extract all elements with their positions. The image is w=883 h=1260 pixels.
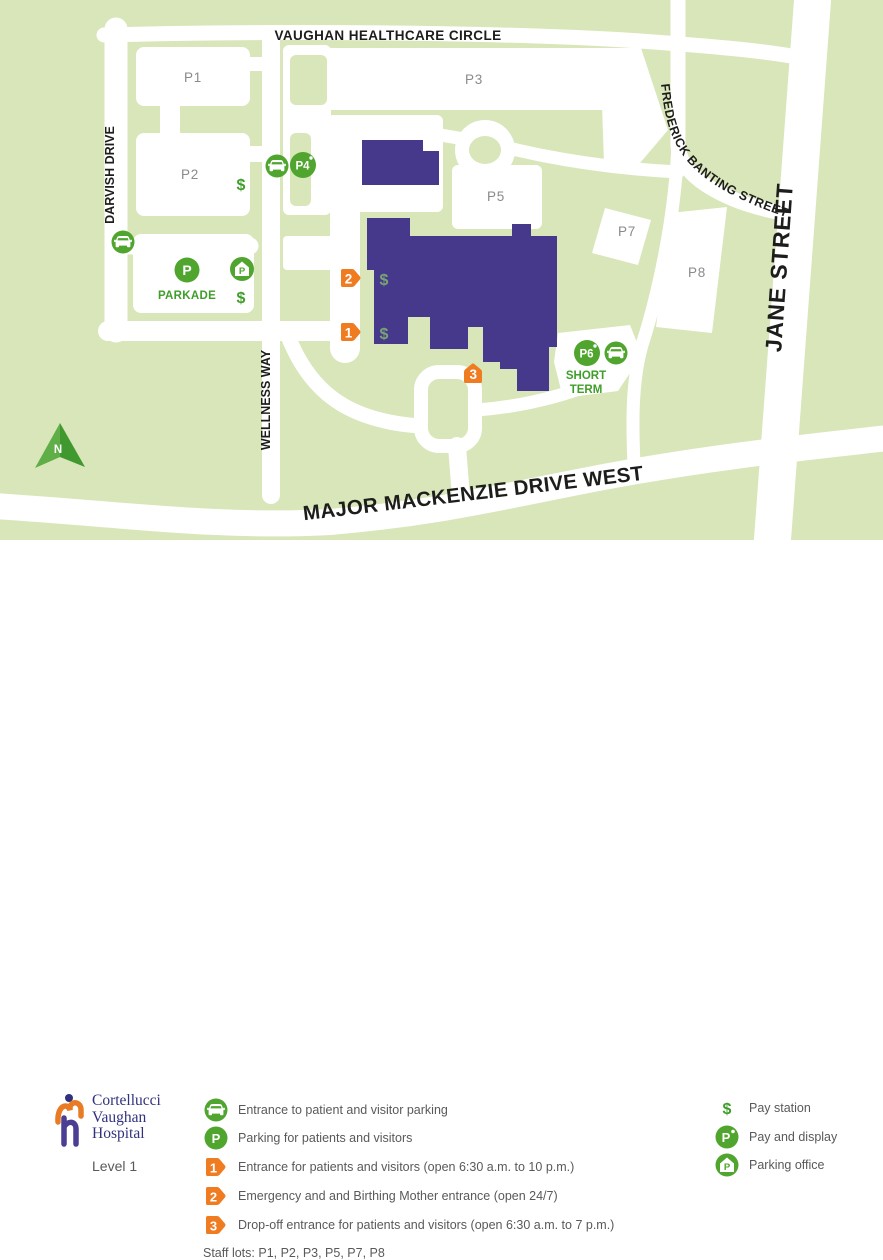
level-indicator: Level 1: [92, 1158, 137, 1174]
p4-badge-text: P4: [295, 161, 310, 173]
pay-station-icon: $: [237, 290, 246, 307]
pay-station-icon: $: [380, 326, 389, 343]
island: [290, 55, 327, 105]
entrance-1-number: 1: [345, 326, 353, 341]
legend-row-pay-station: $ Pay station: [714, 1095, 811, 1121]
hospital-name-line3: Hospital: [92, 1126, 161, 1143]
entrance-3-number: 3: [210, 1219, 217, 1234]
staff-lots-note: Staff lots: P1, P2, P3, P5, P7, P8: [203, 1246, 385, 1260]
p4-pay-display-badge: P4: [290, 152, 316, 178]
label-p7: P7: [618, 224, 636, 239]
office-icon-letter: P: [724, 1162, 731, 1173]
hospital-name-line2: Vaughan: [92, 1110, 161, 1127]
hospital-name: Cortellucci Vaughan Hospital: [92, 1093, 161, 1143]
label-p8: P8: [688, 265, 706, 280]
legend-label: Parking office: [749, 1158, 825, 1172]
north-letter: N: [54, 444, 62, 456]
car-entrance-icon: [203, 1097, 229, 1123]
entrance-2-badge: 2: [203, 1183, 229, 1209]
p6-badge-text: P6: [579, 349, 593, 361]
label-darvish-drive: DARVISH DRIVE: [103, 126, 117, 224]
label-short: SHORT: [566, 370, 606, 382]
parking-office-icon: P: [714, 1152, 740, 1178]
label-p5: P5: [487, 189, 505, 204]
legend-label: Drop-off entrance for patients and visit…: [238, 1218, 614, 1232]
lot-driveway: [245, 57, 267, 71]
legend-row-pay-display: P Pay and display: [714, 1124, 837, 1150]
pay-station-icon: $: [714, 1095, 740, 1121]
legend-label: Emergency and and Birthing Mother entran…: [238, 1189, 558, 1203]
entrance-2-number: 2: [210, 1190, 217, 1205]
parking-icon-letter: P: [212, 1131, 221, 1146]
legend-row-parking-office: P Parking office: [714, 1152, 825, 1178]
label-p1: P1: [184, 70, 202, 85]
lot-connector: [283, 236, 335, 270]
parking-icon: P: [175, 258, 200, 283]
label-term: TERM: [570, 384, 603, 396]
entrance-3-number: 3: [469, 367, 477, 382]
hospital-parking-map: VAUGHAN HEALTHCARE CIRCLE DARVISH DRIVE …: [0, 0, 883, 540]
pay-station-icon: $: [237, 177, 246, 194]
entrance-3-badge: 3: [203, 1212, 229, 1238]
car-entrance-icon: [112, 231, 135, 254]
label-parkade: PARKADE: [158, 290, 216, 302]
parking-icon-letter: P: [182, 262, 191, 278]
pay-station-icon: $: [380, 272, 389, 289]
legend-row-entrance-3: 3 Drop-off entrance for patients and vis…: [203, 1212, 614, 1238]
hospital-logo: [54, 1092, 92, 1152]
map-legend: Cortellucci Vaughan Hospital Level 1 Ent…: [0, 540, 883, 740]
legend-label: Pay and display: [749, 1130, 837, 1144]
p6-pay-display-badge: P6: [574, 340, 600, 366]
legend-label: Entrance for patients and visitors (open…: [238, 1160, 574, 1174]
car-entrance-icon: [266, 155, 289, 178]
label-p3: P3: [465, 72, 483, 87]
legend-label: Parking for patients and visitors: [238, 1131, 412, 1145]
legend-label: Entrance to patient and visitor parking: [238, 1103, 448, 1117]
car-entrance-icon: [605, 342, 628, 365]
island: [469, 136, 501, 164]
parking-office-icon: P: [230, 257, 254, 281]
legend-row-car-entrance: Entrance to patient and visitor parking: [203, 1097, 448, 1123]
map-canvas: VAUGHAN HEALTHCARE CIRCLE DARVISH DRIVE …: [0, 0, 883, 540]
entrance-1-badge: 1: [203, 1154, 229, 1180]
entrance-2-number: 2: [345, 272, 353, 287]
legend-row-parking: P Parking for patients and visitors: [203, 1125, 412, 1151]
legend-row-entrance-2: 2 Emergency and and Birthing Mother entr…: [203, 1183, 558, 1209]
pay-display-icon: P: [714, 1124, 740, 1150]
label-vaughan-healthcare-circle: VAUGHAN HEALTHCARE CIRCLE: [275, 28, 502, 43]
legend-row-entrance-1: 1 Entrance for patients and visitors (op…: [203, 1154, 574, 1180]
hospital-name-line1: Cortellucci: [92, 1093, 161, 1110]
lot-driveway: [160, 98, 180, 140]
label-p2: P2: [181, 167, 199, 182]
parking-icon: P: [203, 1125, 229, 1151]
entrance-1-number: 1: [210, 1161, 217, 1176]
legend-label: Pay station: [749, 1101, 811, 1115]
label-wellness-way: WELLNESS WAY: [259, 349, 273, 450]
office-icon-letter: P: [239, 266, 246, 277]
lot-driveway: [245, 146, 267, 162]
pay-station-symbol: $: [723, 1101, 732, 1118]
pay-display-letter: P: [722, 1130, 731, 1145]
